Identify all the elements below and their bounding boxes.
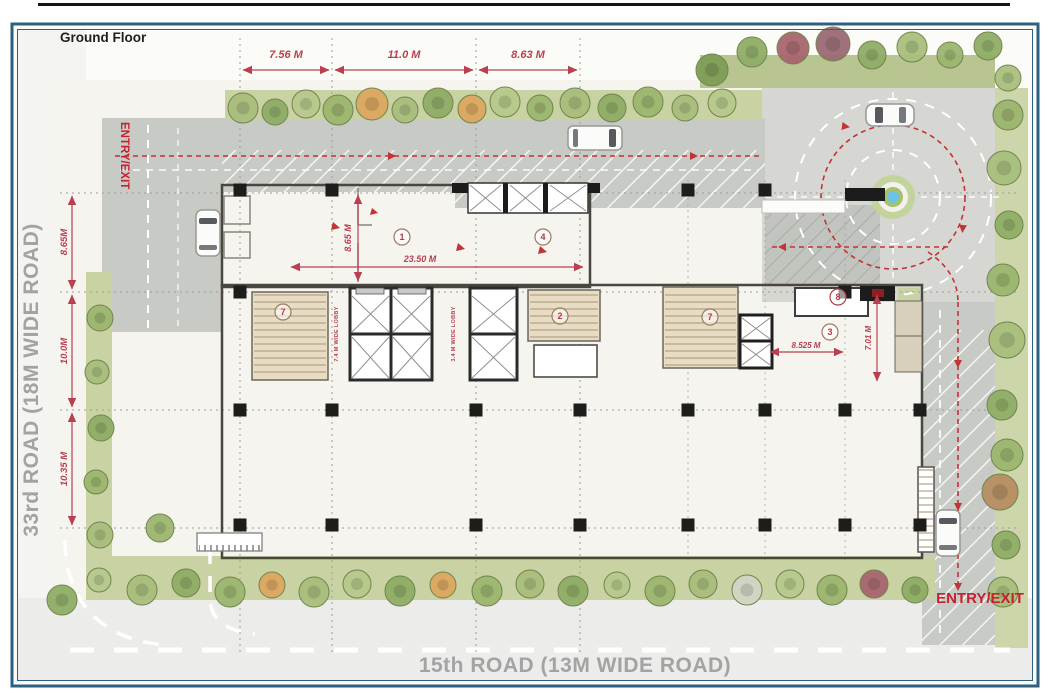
column [682,519,695,532]
tree-icon [633,87,663,117]
tree-icon [995,211,1023,239]
column [839,404,852,417]
tree-icon [87,568,111,592]
unit-marker-number: 8 [835,292,840,302]
tree-icon [472,576,502,606]
staircase-center [528,290,600,377]
column [234,286,247,299]
dim-left-1: 8.65M [59,228,70,255]
drive-green-sliver [898,288,920,302]
dim-hall-length: 23.50 M [403,254,437,264]
dim-left-3: 10.35 M [59,451,70,486]
tree-icon [385,576,415,606]
unit-marker-number: 4 [540,232,545,242]
column [326,519,339,532]
tree-icon [343,570,371,598]
tree-icon [991,439,1023,471]
car-icon [196,210,220,256]
tree-icon [937,42,963,68]
service-wall-mark [872,289,884,297]
tree-icon [987,264,1019,296]
lobby-label-center: 3.4 M WIDE LOBBY [451,306,457,361]
elevator-bank-top [452,183,600,213]
unit-marker-number: 7 [707,312,712,322]
column [839,519,852,532]
tree-icon [689,570,717,598]
tree-icon [902,577,928,603]
tree-icon [127,575,157,605]
staircase-right [663,287,738,368]
van-icon [568,126,622,150]
tree-icon [776,570,804,598]
tree-icon [47,585,77,615]
tree-icon [604,572,630,598]
staircase-left [252,292,328,380]
tree-icon [299,577,329,607]
column [574,519,587,532]
floor-plan-page: 7.56 M 11.0 M 8.63 M 8.65M 10.0M 10.35 M… [0,0,1050,693]
column [326,404,339,417]
column [914,519,927,532]
elevator-bank-right [740,315,772,368]
loading-dock [197,533,262,551]
tree-icon [732,575,762,605]
tree-icon [817,575,847,605]
dim-top-1: 7.56 M [269,49,303,61]
lobby-label-left: 7.4 M WIDE LOBBY [334,306,340,361]
car-icon [936,510,960,556]
unit-marker: 1 [394,229,410,245]
dim-right-width: 8.525 M [792,341,821,350]
tree-icon [992,531,1020,559]
tree-icon [356,88,388,120]
page-title: Ground Floor [60,30,147,45]
unit-marker-number: 7 [280,307,285,317]
gate-wall [845,188,885,201]
column [326,184,339,197]
unit-marker: 7 [702,309,718,325]
tree-icon [292,90,320,118]
tree-icon [458,95,486,123]
dim-hall-depth: 8.65 M [343,224,353,252]
tree-icon [816,27,850,61]
elevator-bank-1x2 [470,288,517,380]
unit-marker: 3 [822,324,838,340]
tree-icon [982,474,1018,510]
tree-icon [430,572,456,598]
column [682,184,695,197]
column [234,519,247,532]
column [574,404,587,417]
left-road-label: 33rd ROAD (18M WIDE ROAD) [20,223,43,537]
column [234,404,247,417]
column [759,184,772,197]
tree-icon [777,32,809,64]
column [759,519,772,532]
tree-icon [262,99,288,125]
tree-icon [987,151,1021,185]
tree-icon [85,360,109,384]
tree-icon [527,95,553,121]
unit-marker: 2 [552,308,568,324]
tree-icon [974,32,1002,60]
tree-icon [87,522,113,548]
tree-icon [215,577,245,607]
entry-exit-left: ENTRY/EXIT [118,122,130,189]
unit-marker: 8 [830,289,846,305]
tree-icon [860,570,888,598]
tree-icon [696,54,728,86]
ramp [918,467,934,552]
page-top-rule [38,3,1010,6]
entry-exit-bottom-right: ENTRY/EXIT [936,590,1024,607]
unit-marker: 7 [275,304,291,320]
site-plan-drawing: 7.56 M 11.0 M 8.63 M 8.65M 10.0M 10.35 M… [0,0,1050,693]
column [470,519,483,532]
entry-walk [762,200,845,213]
column [234,184,247,197]
tree-icon [423,88,453,118]
tree-icon [392,97,418,123]
dim-left-2: 10.0M [59,337,70,364]
tree-icon [672,95,698,121]
tree-icon [490,87,520,117]
tree-icon [172,569,200,597]
tree-icon [645,576,675,606]
tree-icon [323,95,353,125]
tree-icon [558,576,588,606]
tree-icon [560,88,590,118]
column [682,404,695,417]
column [470,404,483,417]
tree-icon [516,570,544,598]
tree-icon [737,37,767,67]
elevator-bank-2x2 [350,288,432,380]
tree-icon [987,390,1017,420]
car-icon [866,104,914,126]
tree-icon [598,94,626,122]
tree-icon [989,322,1025,358]
unit-marker-number: 1 [399,232,404,242]
tree-icon [84,470,108,494]
column [914,404,927,417]
tree-icon [858,41,886,69]
dim-top-2: 11.0 M [388,49,422,61]
tree-icon [259,572,285,598]
tree-icon [993,100,1023,130]
tree-icon [897,32,927,62]
unit-marker-number: 3 [827,327,832,337]
dim-top-3: 8.63 M [511,49,545,61]
dim-right-depth: 7.01 M [864,325,873,350]
tree-icon [87,305,113,331]
column [759,404,772,417]
tree-icon [146,514,174,542]
tree-icon [88,415,114,441]
tree-icon [995,65,1021,91]
bottom-road-label: 15th ROAD (13M WIDE ROAD) [419,654,731,677]
tree-icon [708,89,736,117]
tree-icon [228,93,258,123]
unit-marker: 4 [535,229,551,245]
unit-marker-number: 2 [557,311,562,321]
